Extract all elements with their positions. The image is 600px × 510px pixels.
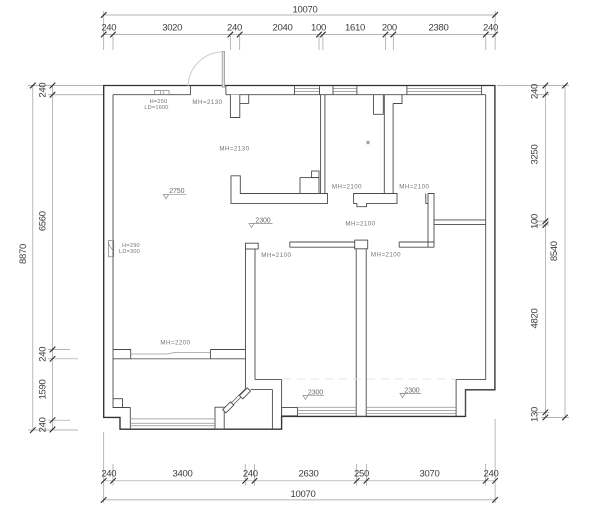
svg-text:240: 240 <box>530 84 541 99</box>
svg-text:240: 240 <box>38 347 49 362</box>
svg-text:2630: 2630 <box>299 469 319 480</box>
svg-text:240: 240 <box>483 23 498 34</box>
svg-text:250: 250 <box>354 469 369 480</box>
svg-text:240: 240 <box>484 469 499 480</box>
svg-text:MH=2100: MH=2100 <box>332 184 362 191</box>
svg-text:240: 240 <box>101 23 116 34</box>
svg-text:2040: 2040 <box>273 23 293 34</box>
svg-text:1590: 1590 <box>38 380 49 400</box>
svg-text:MH=2100: MH=2100 <box>371 252 401 259</box>
svg-text:MH=2100: MH=2100 <box>399 184 429 191</box>
svg-text:8870: 8870 <box>18 244 29 264</box>
svg-text:240: 240 <box>101 469 116 480</box>
svg-text:MH=2130: MH=2130 <box>219 146 249 153</box>
svg-text:10070: 10070 <box>291 489 316 500</box>
svg-text:1610: 1610 <box>345 23 365 34</box>
svg-text:MH=2100: MH=2100 <box>345 220 375 227</box>
svg-text:240: 240 <box>227 23 242 34</box>
svg-text:2380: 2380 <box>429 23 449 34</box>
svg-text:240: 240 <box>38 83 49 98</box>
svg-text:MH=2200: MH=2200 <box>160 340 190 347</box>
svg-text:200: 200 <box>382 23 397 34</box>
svg-text:2750: 2750 <box>169 188 184 195</box>
svg-text:LD=1600: LD=1600 <box>144 105 168 111</box>
svg-text:8540: 8540 <box>549 241 560 261</box>
svg-text:240: 240 <box>243 469 258 480</box>
svg-text:3020: 3020 <box>162 23 182 34</box>
svg-text:130: 130 <box>530 407 541 422</box>
svg-text:LD=300: LD=300 <box>119 249 140 255</box>
svg-text:6560: 6560 <box>38 211 49 231</box>
svg-text:100: 100 <box>530 214 541 229</box>
svg-text:10070: 10070 <box>293 4 318 15</box>
svg-text:MH=2130: MH=2130 <box>192 99 222 106</box>
svg-text:100: 100 <box>311 23 326 34</box>
svg-text:3400: 3400 <box>173 469 193 480</box>
svg-text:4820: 4820 <box>530 309 541 329</box>
svg-text:MH=2100: MH=2100 <box>261 252 291 259</box>
svg-text:240: 240 <box>38 417 49 432</box>
svg-text:3250: 3250 <box>530 145 541 165</box>
svg-text:3070: 3070 <box>420 469 440 480</box>
